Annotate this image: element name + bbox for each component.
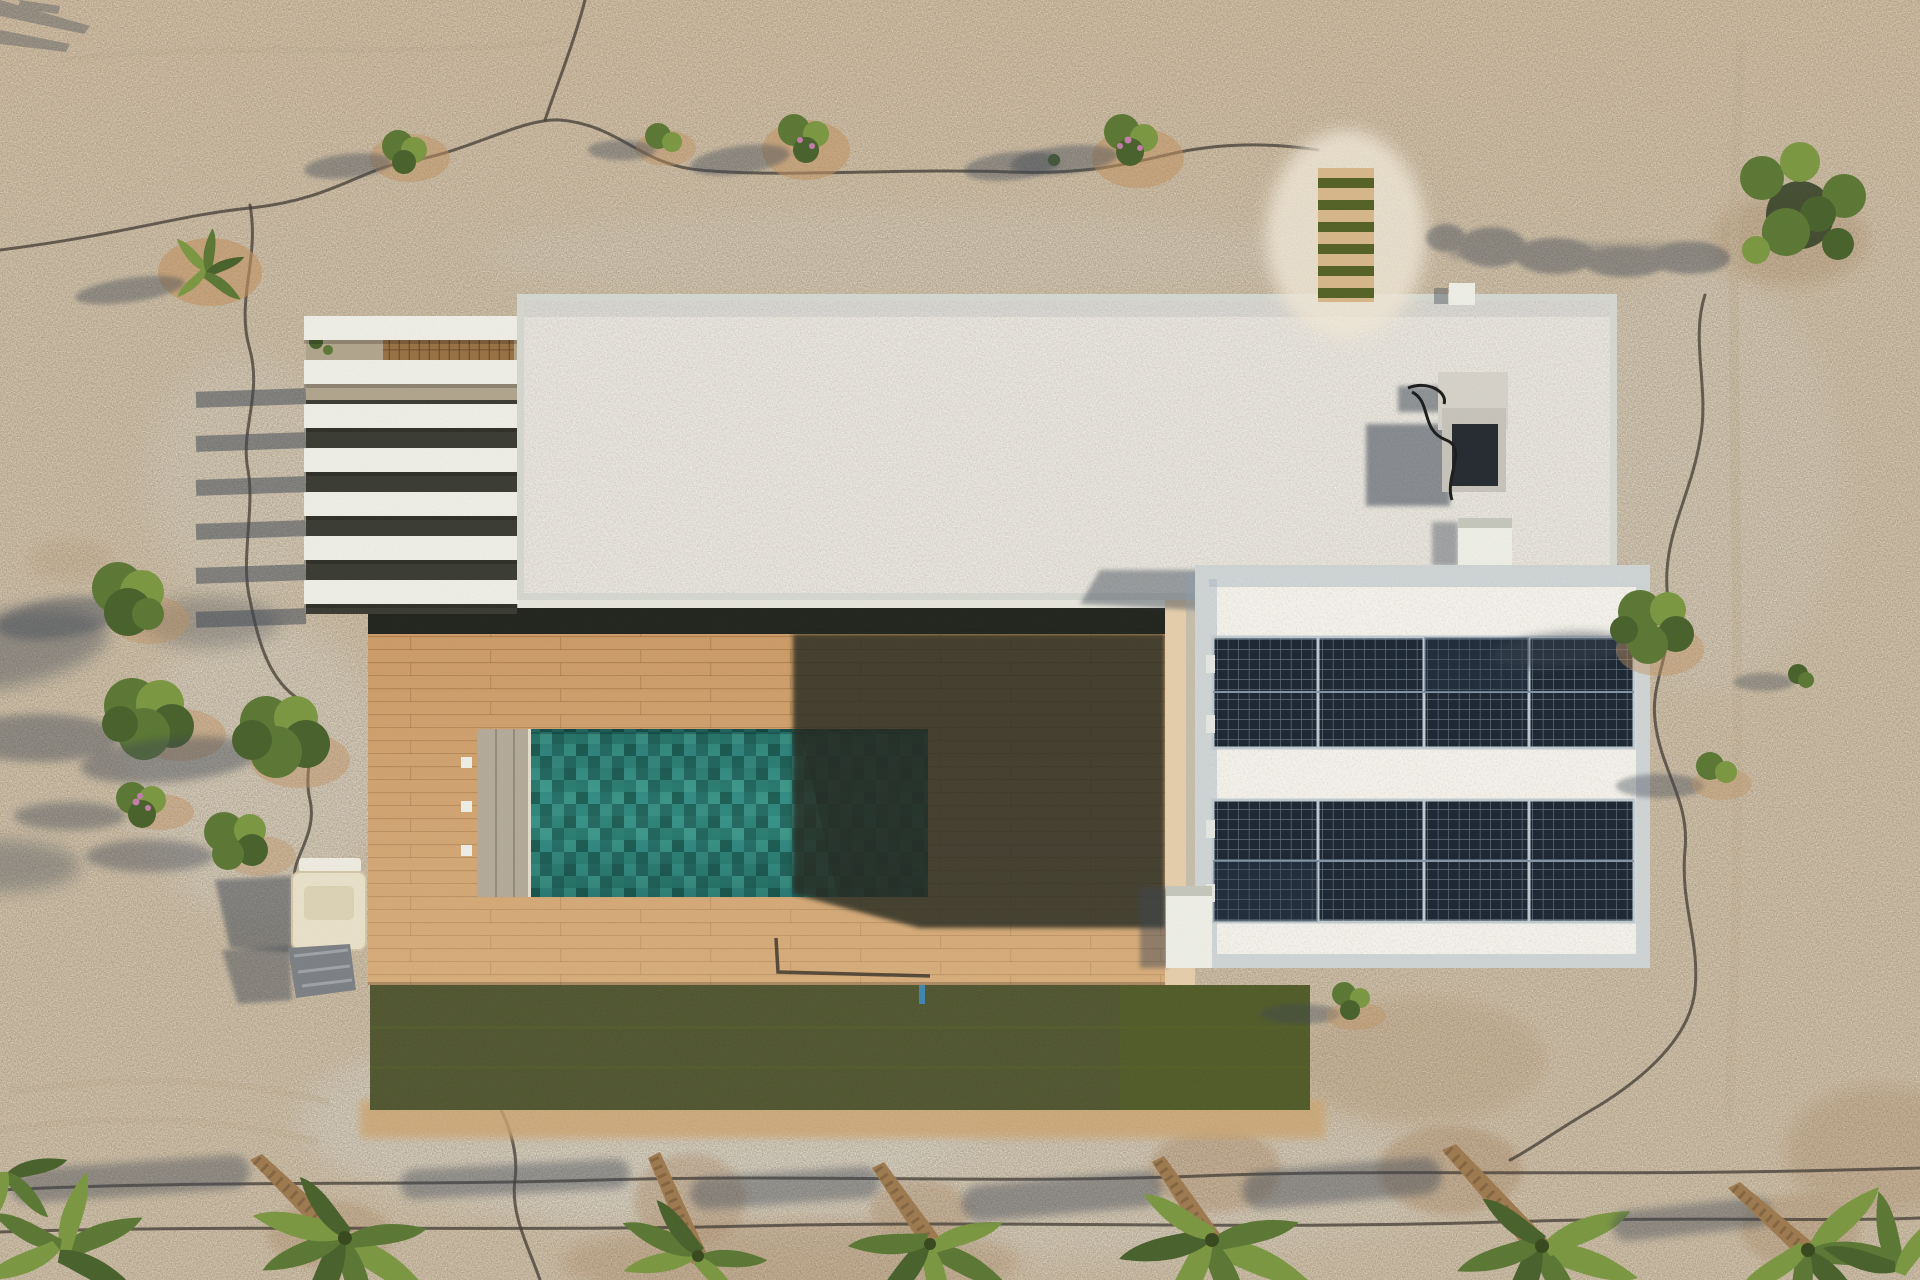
aerial-photo-canvas: Top-down aerial view of a modern flat-ro… xyxy=(0,0,1920,1280)
aerial-photo: Top-down aerial view of a modern flat-ro… xyxy=(0,0,1920,1280)
global-grain xyxy=(0,0,1920,1280)
